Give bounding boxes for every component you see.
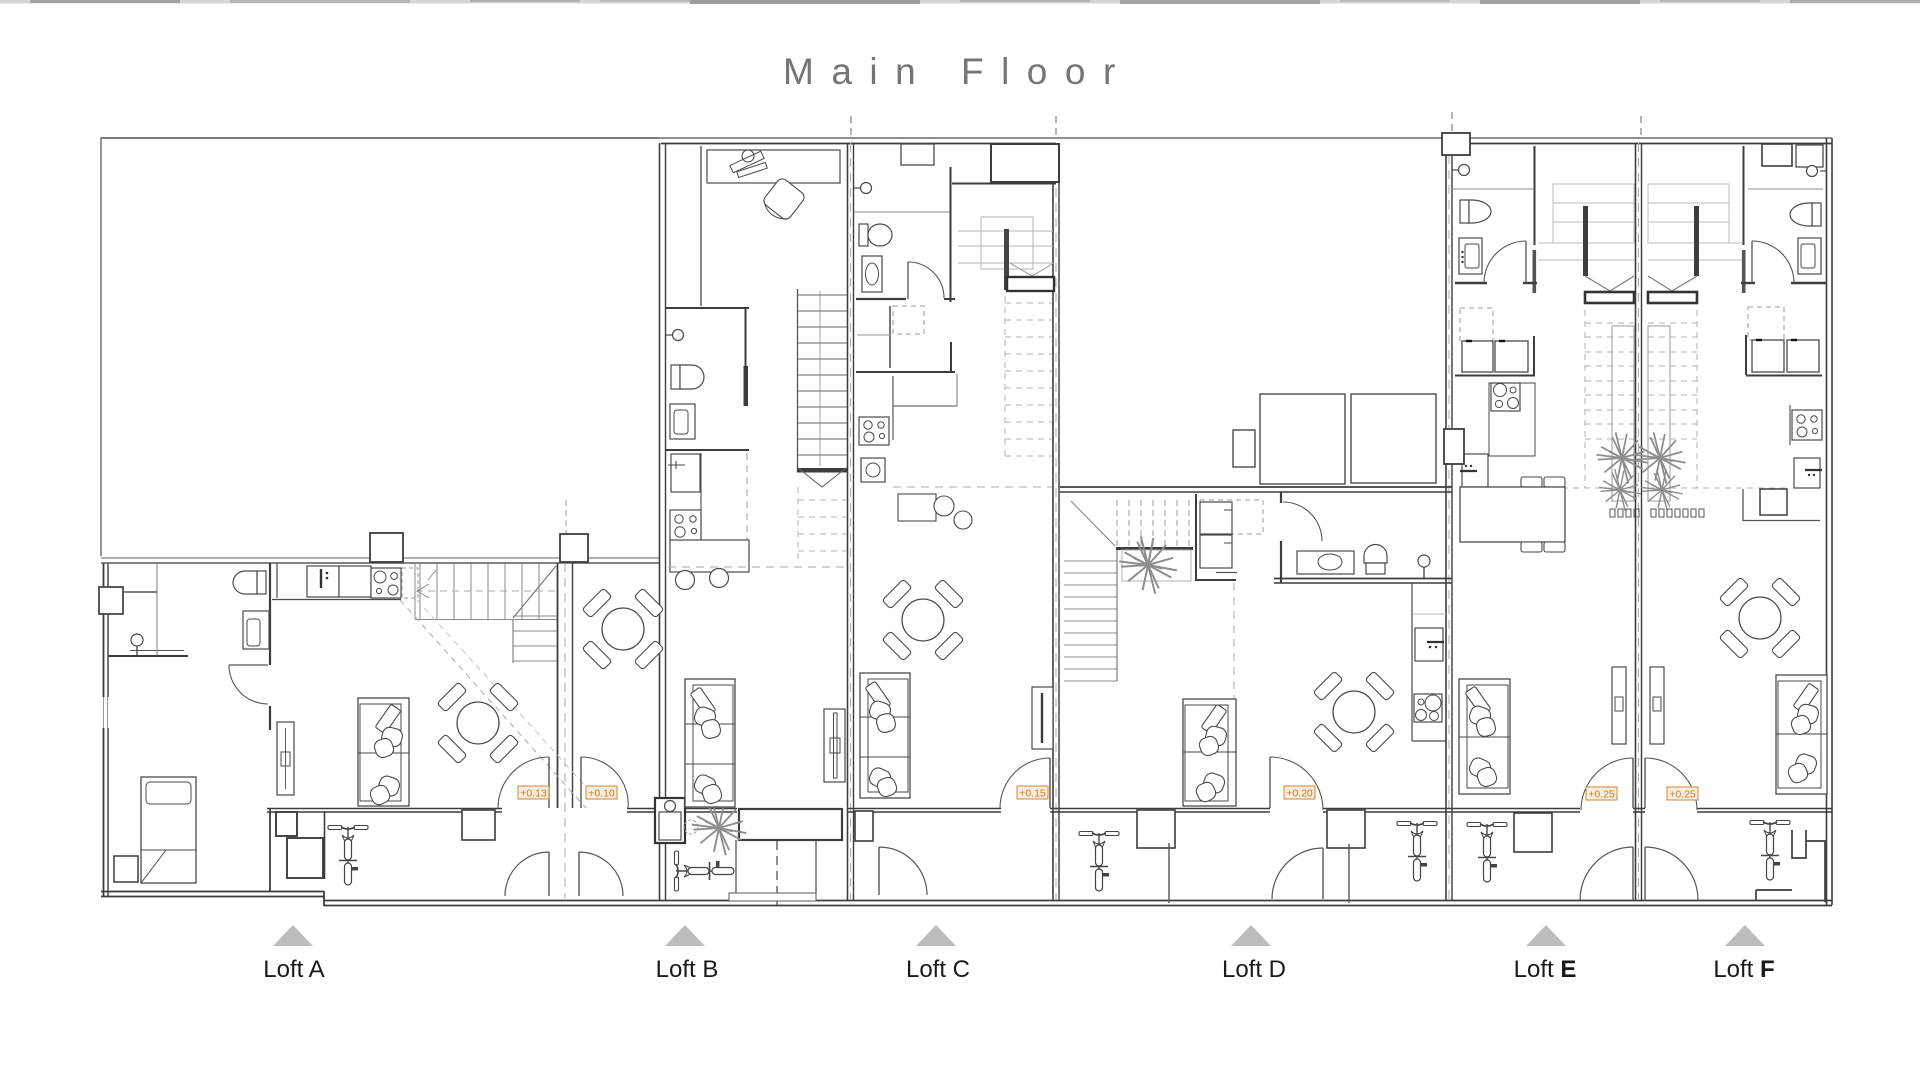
svg-text:Loft D: Loft D (1222, 956, 1286, 983)
svg-text:Loft F: Loft F (1713, 956, 1774, 983)
svg-text:+0.20: +0.20 (1286, 788, 1313, 800)
svg-text:+0.25: +0.25 (1669, 789, 1696, 801)
svg-text:Main Floor: Main Floor (783, 51, 1133, 92)
svg-text:+0.25: +0.25 (1588, 789, 1615, 801)
svg-text:Loft E: Loft E (1514, 956, 1577, 983)
svg-text:Loft B: Loft B (656, 956, 719, 983)
svg-text:+0.10: +0.10 (588, 788, 615, 800)
svg-text:Loft A: Loft A (263, 956, 324, 983)
svg-text:Loft C: Loft C (906, 956, 970, 983)
svg-text:+0.13: +0.13 (520, 788, 547, 800)
svg-text:+0.15: +0.15 (1019, 788, 1046, 800)
